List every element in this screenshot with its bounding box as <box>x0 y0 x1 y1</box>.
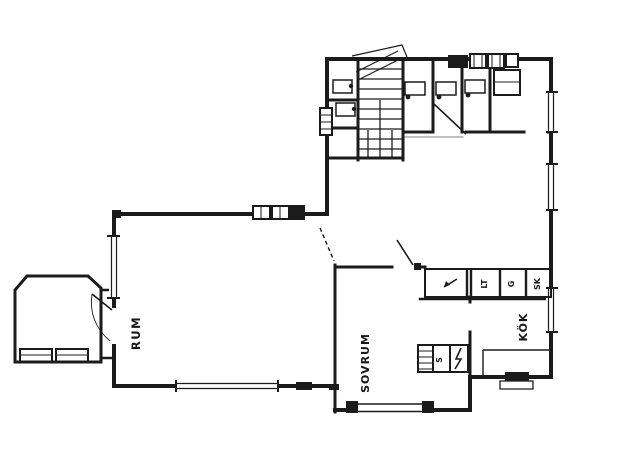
stair-hatch-annotation <box>352 45 407 57</box>
tap-icon <box>406 95 411 100</box>
stair-diagonal-lines <box>356 51 400 80</box>
closet-label-g: G <box>507 281 516 288</box>
tap-icon <box>437 95 442 100</box>
window-sovrum-south <box>346 401 434 415</box>
topwall-marks <box>448 54 518 68</box>
topwall-box-2 <box>488 54 504 68</box>
room-label-kok: KÖK <box>516 313 530 342</box>
tap-icon <box>349 84 353 88</box>
scan-ink-blobs <box>112 210 421 390</box>
kitchen-counter <box>483 350 551 375</box>
appliance-arrow <box>444 279 457 287</box>
door-leaf-sovrum <box>397 240 413 265</box>
kitchen-stoop <box>500 372 533 389</box>
topwall-box-3 <box>506 54 518 67</box>
closet-label-s: S <box>435 357 444 363</box>
room-label-rum: RUM <box>129 316 143 350</box>
sink-bath-2 <box>336 103 356 116</box>
window-leftwing-south <box>176 380 278 392</box>
window-right-1 <box>546 92 558 132</box>
leftwing-topwall-boxes <box>253 206 304 219</box>
sink-roomlet-3 <box>465 80 485 97</box>
closet-label-sk: SK <box>533 277 542 290</box>
window-post-right <box>422 401 434 413</box>
window-right-2 <box>546 164 558 210</box>
stoop-dark-step <box>505 372 529 381</box>
tap-icon <box>352 107 356 111</box>
doors <box>91 104 466 344</box>
window-upper-west <box>320 108 332 135</box>
stoop-outline-step <box>500 381 533 389</box>
shelves-icon <box>419 351 432 369</box>
closet-band-dividers <box>467 269 526 297</box>
topwall-box-1 <box>470 54 486 68</box>
topwall-dark-vent <box>448 55 468 68</box>
sink-roomlet-2 <box>436 82 456 99</box>
sink-roomlet-1 <box>405 82 425 99</box>
floor-plan-sheet: RUM SOVRUM KÖK LT G SK S <box>0 0 625 460</box>
sink-bath-1 <box>333 80 353 93</box>
tap-icon <box>466 93 471 98</box>
electrical-lightning-icon <box>455 348 461 369</box>
porch <box>15 276 112 362</box>
room-label-sovrum: SOVRUM <box>359 333 372 393</box>
window-leftwing-west <box>107 236 120 298</box>
closet-label-lt: LT <box>480 279 489 289</box>
staircase <box>352 45 407 158</box>
floor-plan-canvas: RUM SOVRUM KÖK LT G SK S <box>0 0 625 460</box>
window-post-left <box>346 401 358 413</box>
